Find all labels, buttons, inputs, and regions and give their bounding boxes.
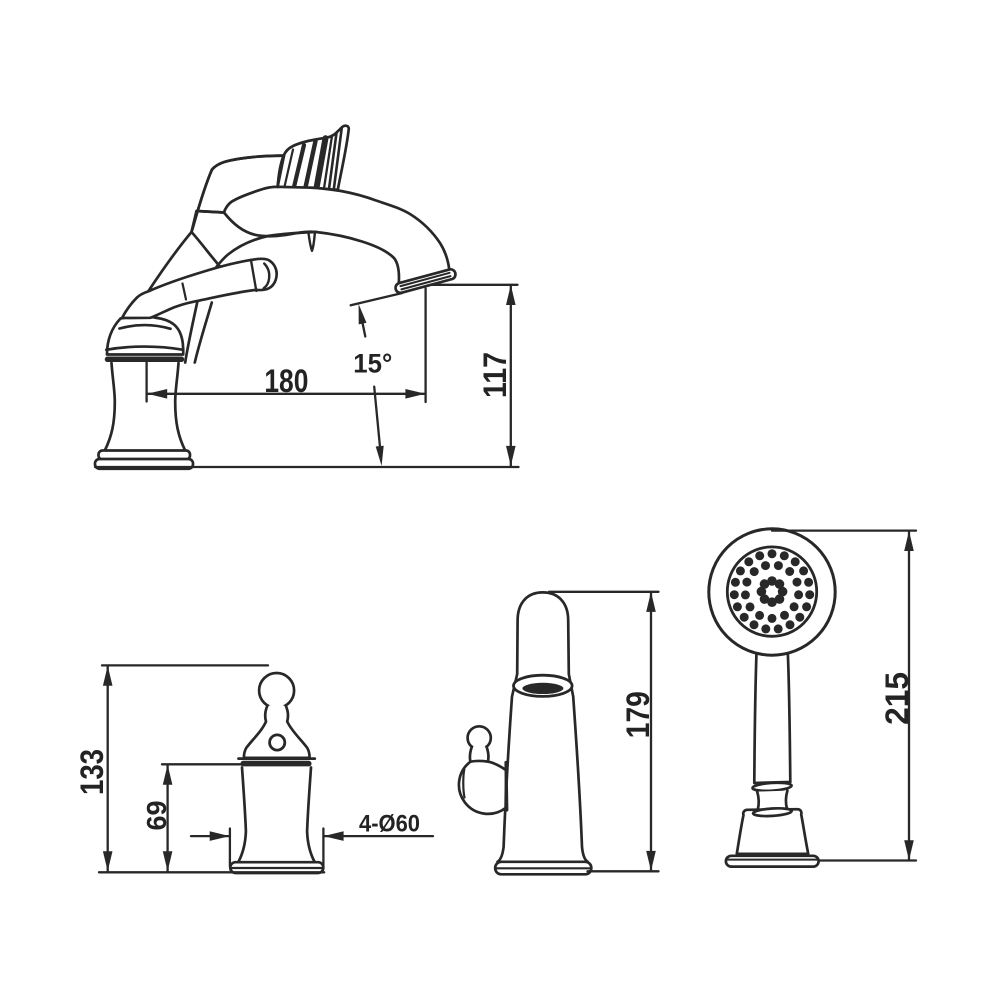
svg-text:4-Ø60: 4-Ø60 (359, 811, 420, 838)
svg-text:180: 180 (264, 363, 308, 399)
svg-text:15°: 15° (353, 349, 392, 379)
svg-text:179: 179 (620, 691, 656, 738)
svg-text:117: 117 (477, 352, 513, 398)
svg-text:69: 69 (141, 801, 172, 831)
svg-text:215: 215 (879, 672, 915, 725)
svg-text:133: 133 (74, 749, 110, 795)
